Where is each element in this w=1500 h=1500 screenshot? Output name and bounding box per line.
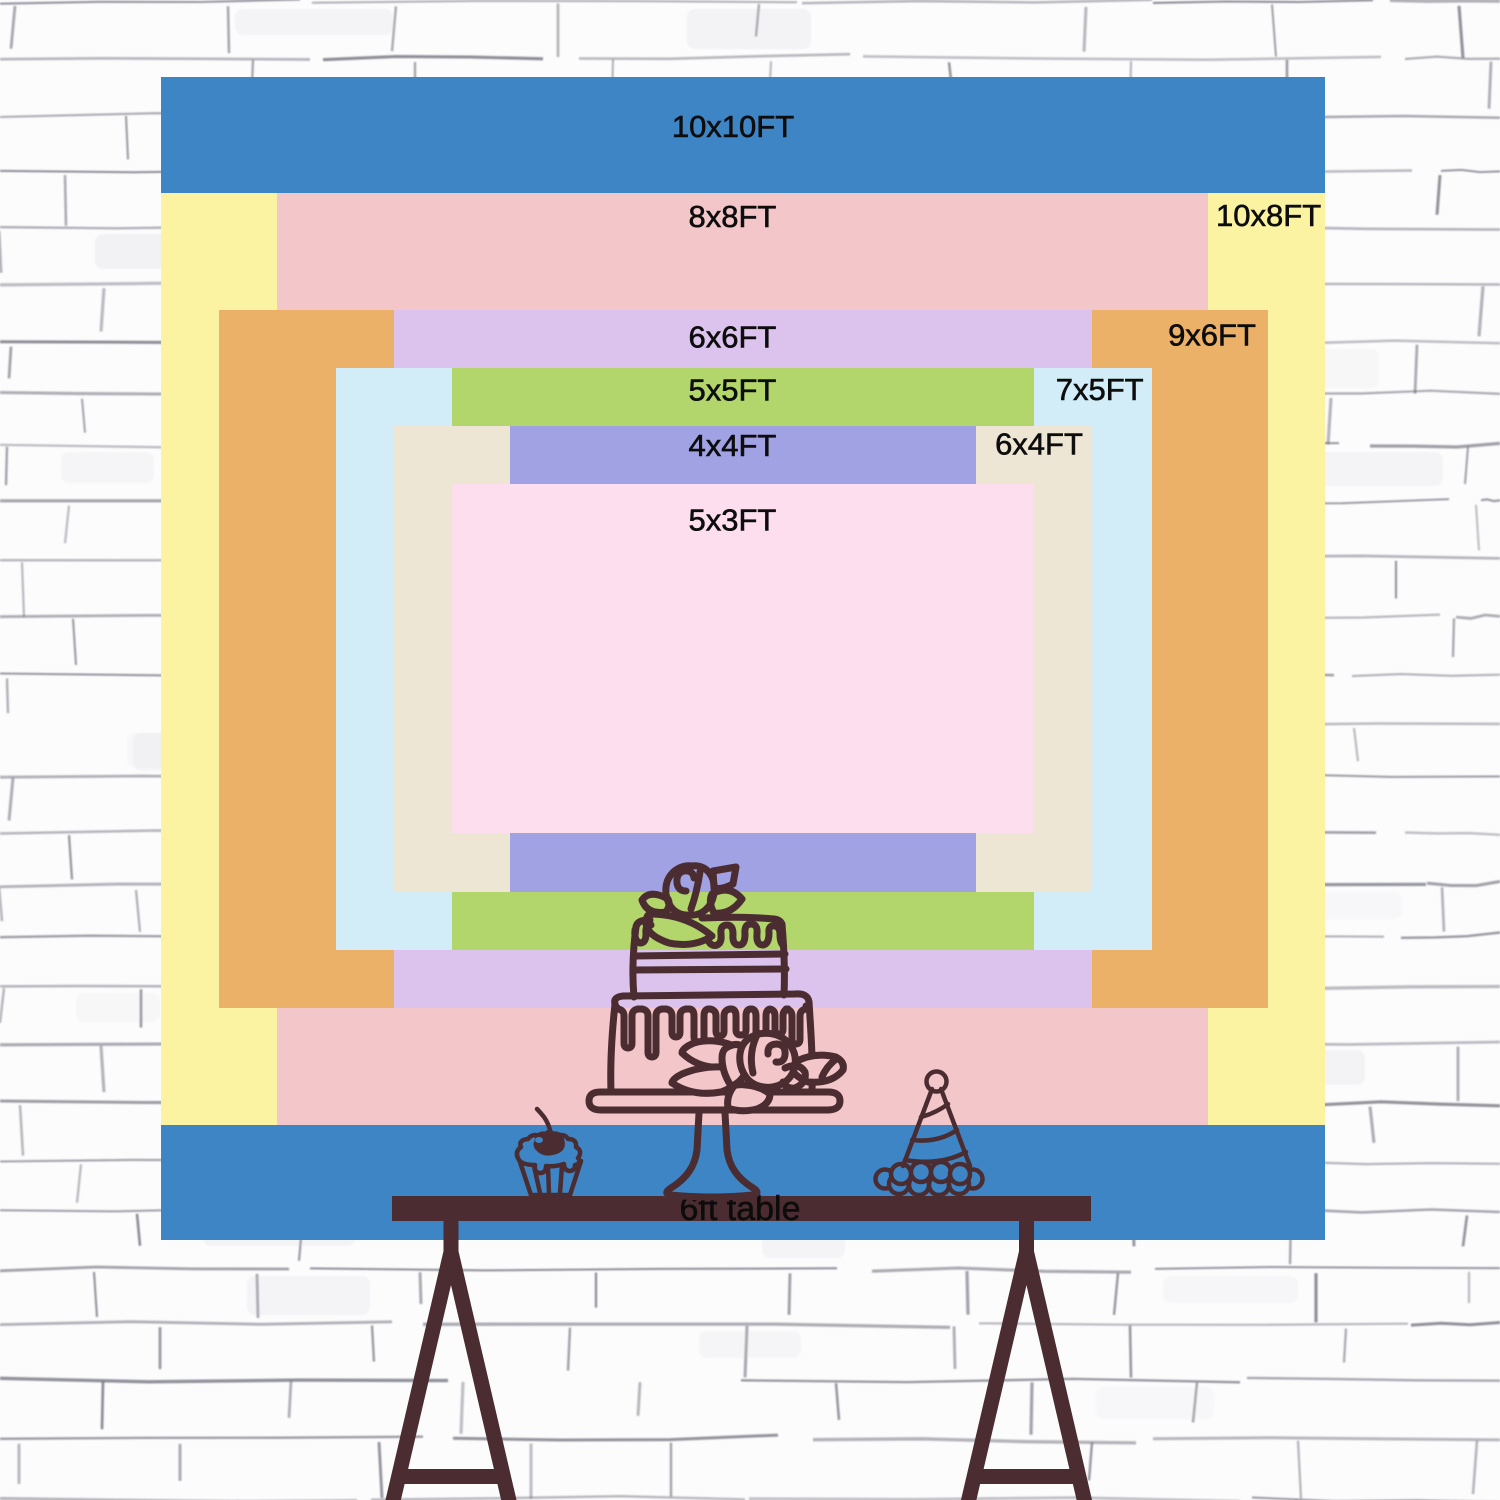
svg-text:4x4FT: 4x4FT — [688, 428, 776, 463]
svg-text:9x6FT: 9x6FT — [1168, 318, 1256, 353]
svg-text:10x8FT: 10x8FT — [1216, 198, 1321, 233]
svg-text:6x4FT: 6x4FT — [995, 427, 1083, 462]
svg-text:7x5FT: 7x5FT — [1056, 372, 1144, 407]
svg-text:6x6FT: 6x6FT — [688, 319, 776, 354]
svg-text:8x8FT: 8x8FT — [688, 199, 776, 234]
svg-text:5x5FT: 5x5FT — [688, 373, 776, 408]
svg-text:10x10FT: 10x10FT — [672, 109, 794, 144]
svg-text:5x3FT: 5x3FT — [688, 503, 776, 538]
